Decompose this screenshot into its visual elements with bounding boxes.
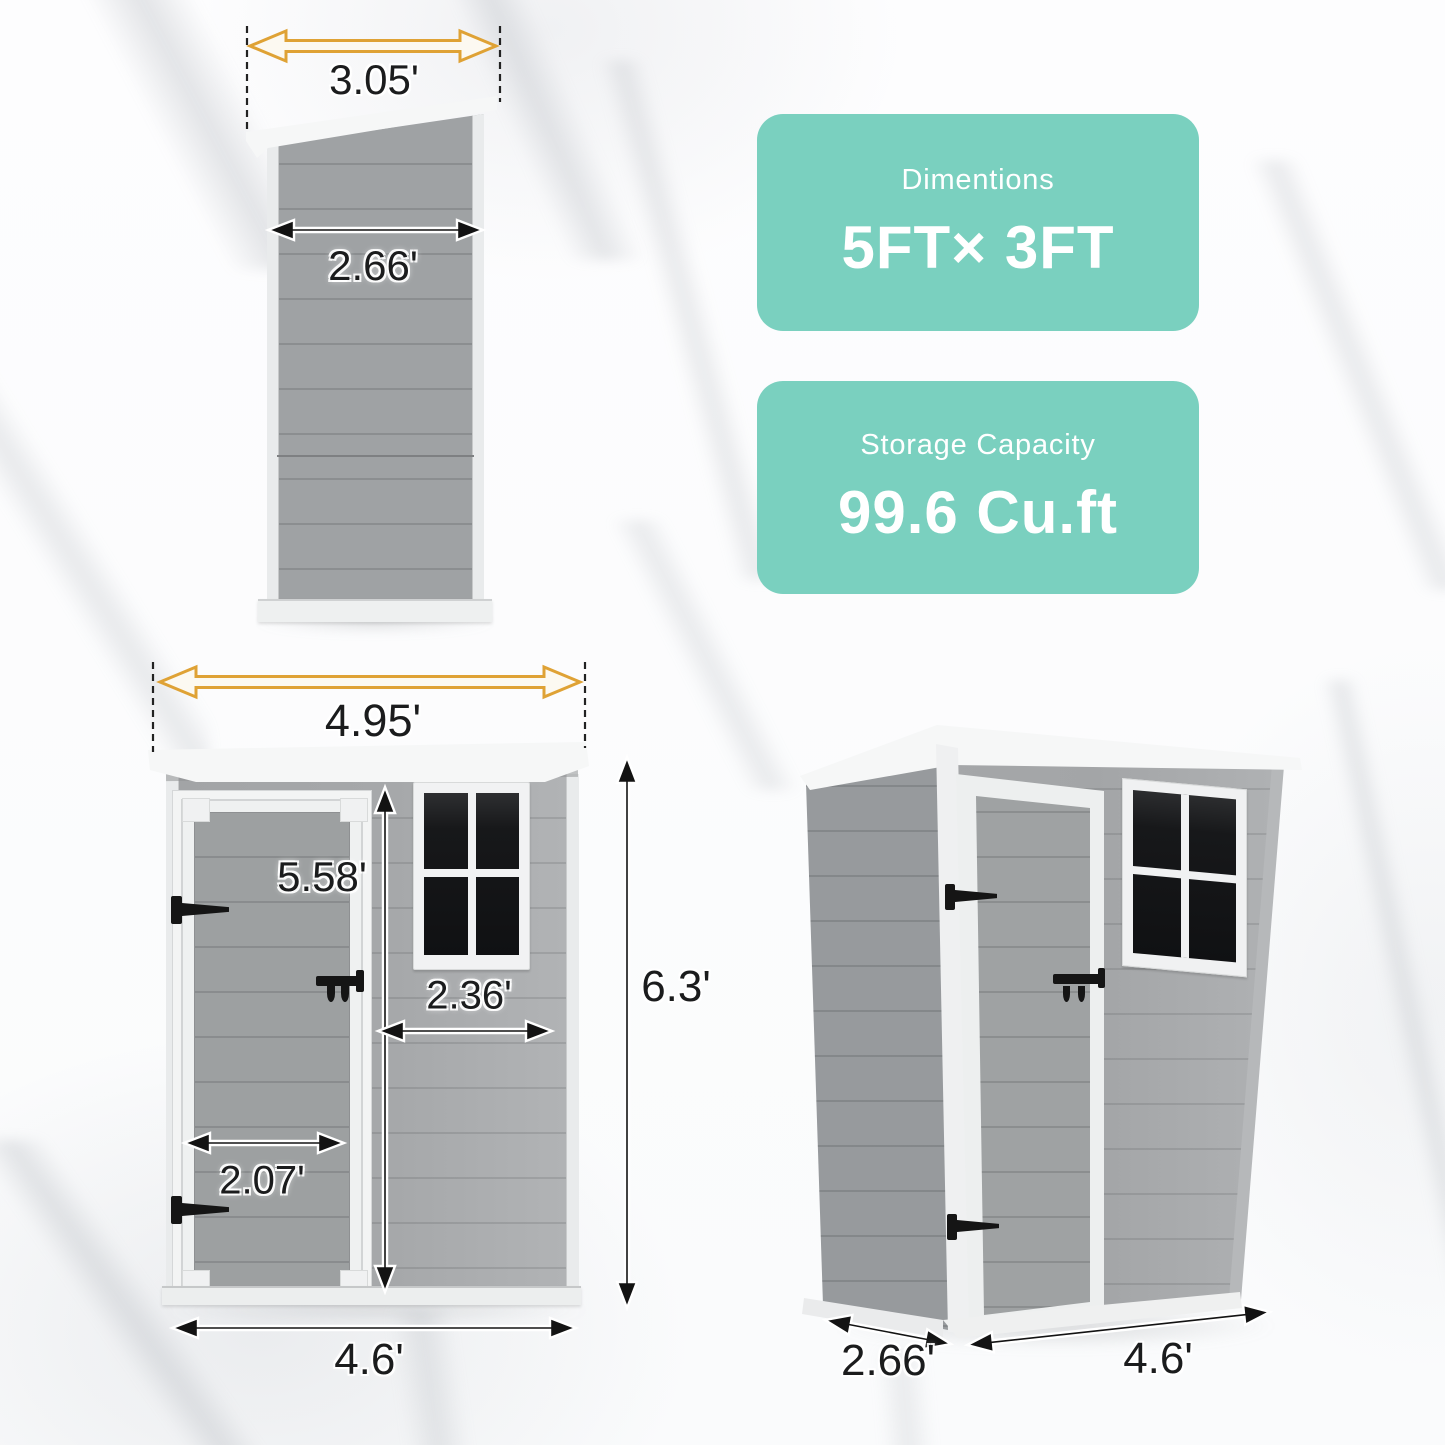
door-latch-icon <box>356 970 364 992</box>
door-latch-icon <box>1098 968 1105 988</box>
front-view-right-trim <box>566 774 579 1303</box>
side-view-left-trim <box>267 136 279 604</box>
door-hinge-icon <box>171 1196 182 1224</box>
perspective-depth-label: 2.66' <box>841 1336 935 1386</box>
dimensions-card-value: 5FT× 3FT <box>841 213 1114 282</box>
door-latch-icon <box>1078 986 1085 1002</box>
window-width-label: 2.36' <box>426 974 512 1019</box>
side-view-body <box>265 106 486 604</box>
front-roof-width-label: 4.95' <box>325 695 421 747</box>
storage-capacity-card: Storage Capacity 99.6 Cu.ft <box>757 381 1199 594</box>
perspective-side-panel <box>803 742 961 1338</box>
marble-vein <box>1230 160 1445 590</box>
marble-vein <box>170 1310 690 1445</box>
side-view-right-trim <box>472 106 484 604</box>
front-view-base <box>162 1286 581 1305</box>
side-view-base <box>258 599 492 622</box>
side-view-seam-line <box>277 455 474 457</box>
front-window <box>413 782 530 970</box>
side-roof-width-label: 3.05' <box>329 56 419 104</box>
door-hinge-icon <box>171 896 182 924</box>
perspective-window <box>1122 778 1247 977</box>
door-width-label: 2.07' <box>219 1159 305 1204</box>
side-depth-label: 2.66' <box>328 242 418 290</box>
storage-capacity-card-title: Storage Capacity <box>860 429 1095 462</box>
storage-shed-dimension-infographic: Dimentions 5FT× 3FT Storage Capacity 99.… <box>0 0 1445 1445</box>
door-latch-icon <box>1063 986 1070 1002</box>
door-latch-icon <box>341 985 349 1002</box>
marble-vein <box>1310 680 1445 1300</box>
dimensions-card-title: Dimentions <box>901 164 1054 197</box>
overall-height-label: 6.3' <box>641 962 711 1012</box>
front-window-mullion <box>424 869 519 877</box>
door-hinge-icon <box>947 1214 957 1240</box>
door-latch-icon <box>327 985 335 1002</box>
front-door-corner-block <box>340 798 368 822</box>
perspective-width-label: 4.6' <box>1123 1334 1193 1384</box>
door-hinge-icon <box>945 884 955 910</box>
front-door-corner-block <box>182 798 210 822</box>
marble-vein <box>0 370 210 800</box>
door-height-label: 5.58' <box>277 853 367 901</box>
storage-capacity-card-value: 99.6 Cu.ft <box>838 478 1118 547</box>
side-view-slats <box>277 120 474 604</box>
front-width-label: 4.6' <box>334 1335 404 1385</box>
dimensions-card: Dimentions 5FT× 3FT <box>757 114 1199 331</box>
